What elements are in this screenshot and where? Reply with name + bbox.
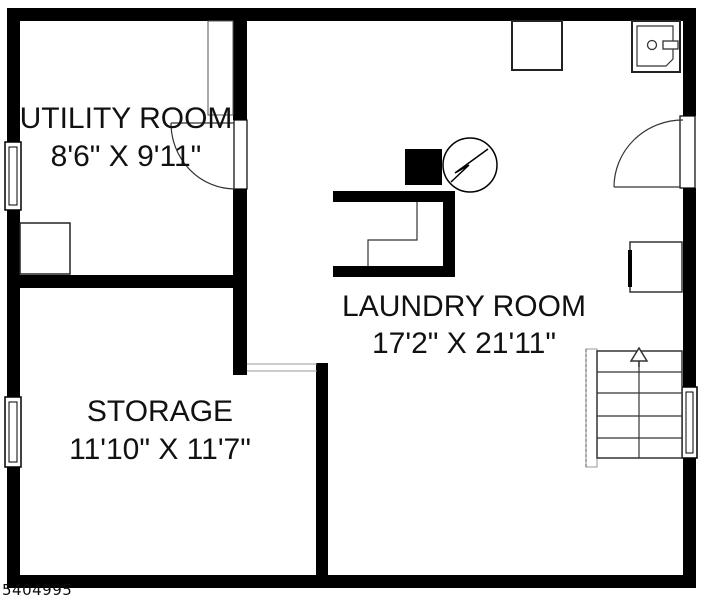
- utility-sink: [632, 21, 680, 72]
- wall-left-middle: [7, 210, 20, 398]
- window-frame: [5, 397, 21, 467]
- door-swing-arc: [614, 120, 683, 187]
- door-jamb: [680, 116, 695, 188]
- window-laundry-right: [682, 387, 697, 458]
- floor-plan: UTILITY ROOM 8'6" X 9'11" LAUNDRY ROOM 1…: [0, 0, 704, 600]
- listing-number-watermark: 5404995: [2, 581, 72, 599]
- doorway-opening-storage: [247, 364, 317, 371]
- laundry-room-name: LAUNDRY ROOM: [333, 288, 595, 325]
- wall-bottom: [7, 575, 696, 588]
- laundry-room-dimensions: 17'2" X 21'11": [333, 325, 595, 362]
- wall-right-middle: [683, 188, 696, 388]
- wall-storage-right-lower: [316, 363, 328, 576]
- enclosure-top-wall: [333, 191, 455, 202]
- window-frame: [682, 387, 697, 458]
- cabinet-door-edge: [628, 250, 632, 287]
- enclosure-right-wall: [443, 191, 455, 277]
- stair-rail: [586, 349, 597, 467]
- sink-drain-icon: [648, 41, 657, 50]
- utility-appliance: [20, 223, 70, 274]
- stairs: [586, 348, 682, 467]
- storage-room-name: STORAGE: [29, 393, 291, 431]
- furnace: [405, 149, 442, 185]
- storage-room-dimensions: 11'10" X 11'7": [29, 431, 291, 469]
- wall-utility-right-lower: [233, 189, 247, 288]
- utility-room-dimensions: 8'6" X 9'11": [0, 138, 257, 176]
- laundry-appliance: [512, 21, 562, 70]
- electrical-panel-circle: [443, 138, 497, 192]
- wall-right-upper: [683, 8, 696, 116]
- electrical-panel-icon: [443, 138, 497, 192]
- wall-utility-storage: [20, 275, 247, 288]
- room-label-laundry: LAUNDRY ROOM 17'2" X 21'11": [333, 288, 595, 362]
- wall-left-lower: [7, 467, 20, 588]
- door-laundry-right: [614, 116, 695, 188]
- mechanical-enclosure: [333, 191, 455, 277]
- enclosure-step-line: [368, 202, 417, 266]
- enclosure-bottom-wall: [333, 266, 455, 277]
- wall-cabinet-fixture: [628, 242, 682, 292]
- cabinet-outline: [630, 242, 682, 292]
- wall-top: [7, 8, 696, 21]
- room-label-storage: STORAGE 11'10" X 11'7": [29, 393, 291, 469]
- window-storage-left: [5, 397, 21, 467]
- wall-right-lower: [683, 458, 696, 588]
- sink-faucet-icon: [663, 41, 678, 49]
- wall-storage-right-upper: [233, 288, 247, 375]
- utility-room-name: UTILITY ROOM: [0, 100, 257, 138]
- room-label-utility: UTILITY ROOM 8'6" X 9'11": [0, 100, 257, 176]
